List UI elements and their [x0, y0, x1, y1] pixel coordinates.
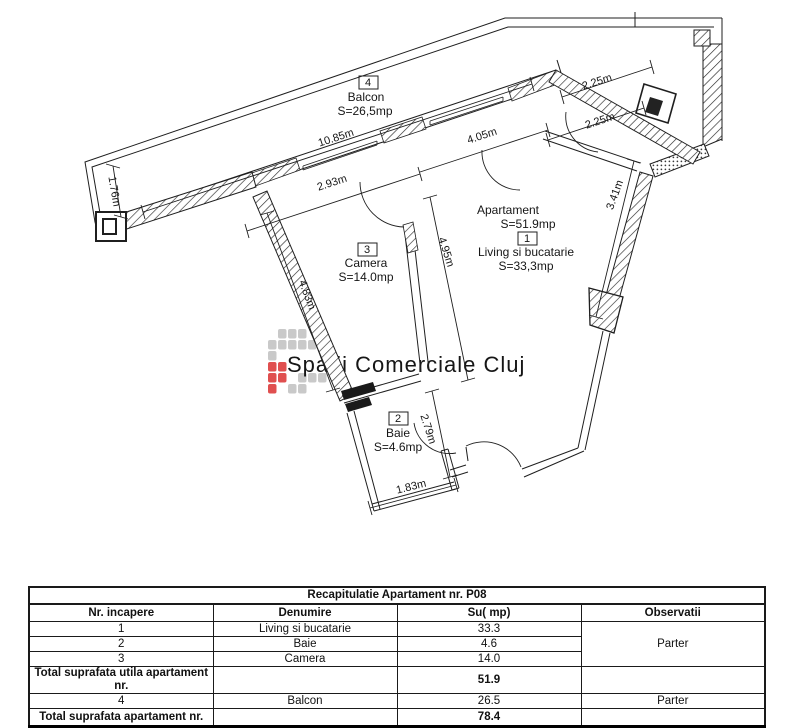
watermark-pixel — [298, 329, 307, 339]
room-area-living: S=33,3mp — [498, 259, 553, 273]
total-label: Total suprafata apartament nr. — [29, 709, 213, 727]
total-value: 78.4 — [397, 709, 581, 727]
header-su-mp: Su( mp) — [397, 604, 581, 622]
recap-table: Recapitulatie Apartament nr. P08 Nr. inc… — [28, 586, 766, 728]
total-utila-value: 51.9 — [397, 667, 581, 694]
watermark-pixel — [298, 340, 307, 350]
cell-denumire: Baie — [213, 637, 397, 652]
cell-observatii: Parter — [581, 694, 765, 709]
total-utila-row: Total suprafata utila apartament nr. 51.… — [29, 667, 765, 694]
cell-nr: 4 — [29, 694, 213, 709]
cell-observatii-merged: Parter — [581, 622, 765, 667]
dimension-labels: 10.85m 2.93m 4.05m 2.25m 2.25m 1.76m 4.8… — [105, 72, 626, 497]
table-row: 4 Balcon 26.5 Parter — [29, 694, 765, 709]
watermark-pixel — [278, 329, 287, 339]
watermark-pixel — [268, 384, 277, 394]
cell-nr: 2 — [29, 637, 213, 652]
room-area-balcon: S=26,5mp — [337, 104, 392, 118]
watermark-pixel — [278, 373, 287, 383]
recap-title: Recapitulatie Apartament nr. P08 — [29, 587, 765, 604]
watermark-pixel — [268, 362, 277, 372]
watermark-pixel — [298, 384, 307, 394]
cell-nr: 3 — [29, 652, 213, 667]
watermark-pixel — [288, 340, 297, 350]
room-name-baie: Baie — [386, 426, 410, 440]
header-nr-incapere: Nr. incapere — [29, 604, 213, 622]
dim-2-93: 2.93m — [316, 173, 349, 194]
room-name-balcon: Balcon — [348, 90, 385, 104]
room-name-camera: Camera — [345, 256, 388, 270]
room-number-baie: 2 — [395, 413, 401, 425]
watermark-pixel — [278, 362, 287, 372]
empty-cell — [581, 709, 765, 727]
dim-10-85: 10.85m — [317, 127, 356, 150]
apartment-title: Apartament — [477, 203, 540, 217]
watermark-pixel — [268, 340, 277, 350]
cell-nr: 1 — [29, 622, 213, 637]
table-row: 1 Living si bucatarie 33.3 Parter — [29, 622, 765, 637]
room-area-baie: S=4.6mp — [374, 440, 423, 454]
cell-su: 4.6 — [397, 637, 581, 652]
total-utila-label: Total suprafata utila apartament nr. — [29, 667, 213, 694]
room-area-camera: S=14.0mp — [338, 270, 393, 284]
dim-1-76: 1.76m — [105, 175, 122, 207]
floorplan-page: { "plan": { "rooms": { "balcon": {"no": … — [0, 0, 786, 720]
dim-4-95: 4.95m — [435, 236, 456, 269]
apartment-area: S=51.9mp — [500, 217, 555, 231]
room-number-balcon: 4 — [365, 77, 371, 89]
watermark-pixel — [268, 373, 277, 383]
empty-cell — [213, 709, 397, 727]
header-observatii: Observatii — [581, 604, 765, 622]
empty-cell — [213, 667, 397, 694]
watermark-pixel — [288, 384, 297, 394]
floor-plan: Spatii Comerciale Cluj — [0, 0, 786, 578]
cell-denumire: Balcon — [213, 694, 397, 709]
cell-denumire: Living si bucatarie — [213, 622, 397, 637]
cell-su: 14.0 — [397, 652, 581, 667]
cell-su: 26.5 — [397, 694, 581, 709]
cell-su: 33.3 — [397, 622, 581, 637]
recap-title-row: Recapitulatie Apartament nr. P08 — [29, 587, 765, 604]
watermark-pixel — [268, 351, 277, 361]
recap-header-row: Nr. incapere Denumire Su( mp) Observatii — [29, 604, 765, 622]
room-name-living: Living si bucatarie — [478, 245, 574, 259]
watermark-pixel — [278, 340, 287, 350]
cell-denumire: Camera — [213, 652, 397, 667]
room-number-living: 1 — [524, 233, 530, 245]
room-number-camera: 3 — [364, 244, 370, 256]
total-row: Total suprafata apartament nr. 78.4 — [29, 709, 765, 727]
watermark-pixel — [288, 329, 297, 339]
dim-4-05: 4.05m — [466, 126, 499, 147]
empty-cell — [581, 667, 765, 694]
header-denumire: Denumire — [213, 604, 397, 622]
dim-2-25-a: 2.25m — [581, 72, 614, 93]
dim-2-25-b: 2.25m — [584, 111, 617, 132]
